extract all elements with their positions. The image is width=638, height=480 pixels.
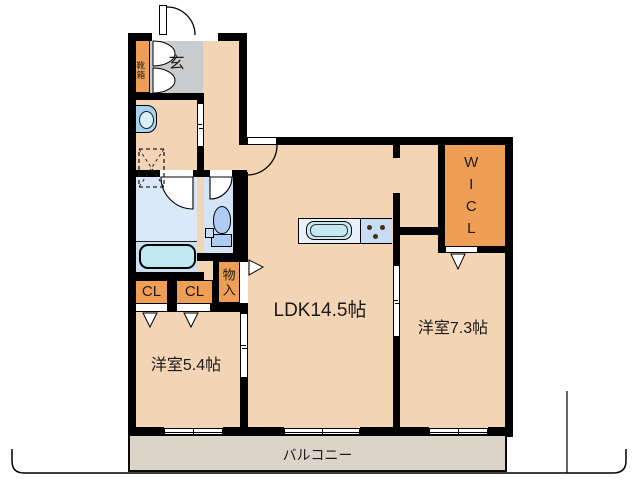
bedroom-east-label: 洋室7.3帖 — [400, 321, 506, 338]
ldk-label: LDK14.5帖 — [247, 301, 393, 321]
kitchen-sink-inner — [310, 224, 348, 237]
toilet-bowl-icon — [213, 206, 231, 234]
wall-storage-left — [213, 261, 218, 307]
entrance-label: 玄 — [150, 56, 203, 73]
floor-plan: 玄 靴箱 LDK14.5帖 洋室7.3帖 洋室5.4帖 バルコニー WICL 物… — [0, 0, 638, 480]
wall-ldk-west-c — [240, 378, 248, 435]
storage-label: 物入 — [221, 264, 238, 302]
bedroom-east-sliding-door — [393, 265, 400, 337]
wall-washroom-bath-a — [128, 170, 160, 177]
wall-bottom-b — [223, 427, 284, 436]
bathroom-floor — [135, 177, 197, 241]
window-bedroom-east — [429, 428, 488, 435]
ldk-door-leaf — [247, 137, 277, 145]
storage-door-opening — [240, 262, 248, 303]
toilet-paper-holder-icon — [205, 228, 214, 238]
kitchen-stove-section — [360, 219, 392, 243]
toilet-door-opening — [210, 170, 232, 177]
bathtub-icon — [139, 244, 196, 269]
wall-wicl-left — [438, 145, 445, 253]
washbasin-icon — [135, 105, 157, 133]
wall-washroom-bath-b — [193, 170, 204, 177]
stove-burner-icon — [373, 234, 378, 239]
wall-top-a — [128, 33, 152, 41]
window-ldk — [284, 428, 360, 435]
wall-ldk-west-a — [240, 172, 248, 262]
window-bedroom-west — [164, 428, 223, 435]
wicl-label: WICL — [463, 150, 487, 245]
nook-opening-floor — [393, 156, 400, 196]
wall-washroom-right-a — [197, 93, 204, 103]
wall-hall-right — [239, 33, 247, 140]
wall-right — [505, 137, 513, 437]
balcony-label: バルコニー — [128, 448, 507, 463]
wall-storage-bottom — [218, 303, 240, 312]
toilet-tank-icon — [211, 234, 232, 247]
washroom-sliding-door — [197, 103, 204, 147]
wicl-door-bar — [445, 246, 478, 253]
wall-cl-bottom-mid — [168, 303, 176, 312]
bedroom-west-sliding-door — [240, 313, 248, 378]
wall-ldk-east-c — [393, 337, 400, 435]
kitchen-sink-icon — [306, 221, 352, 240]
bedroom-west-label: 洋室5.4帖 — [132, 358, 240, 375]
stove-burner-icon — [367, 225, 372, 230]
front-door-leaf — [159, 5, 167, 35]
kitchen-counter — [298, 218, 392, 244]
stove-burner-icon — [380, 225, 385, 230]
wall-cl-bottom-right — [211, 303, 218, 312]
closet-b-label: CL — [176, 284, 213, 300]
wall-wicl-bottom-b — [478, 246, 513, 253]
washbasin-bowl-icon — [139, 111, 154, 129]
front-door-swing-arc — [167, 7, 195, 35]
shoe-box-label: 靴箱 — [136, 50, 149, 90]
ldk-floor — [247, 145, 393, 428]
wall-bath-bottom — [128, 272, 204, 280]
bathroom-door-opening — [160, 170, 193, 177]
wall-entrance-bottom — [128, 93, 203, 100]
closet-b-door-bar — [176, 303, 211, 312]
wall-wicl-bottom-a — [438, 246, 445, 253]
wall-bottom-d — [488, 427, 513, 436]
closet-a-door-bar — [135, 303, 168, 312]
wall-toilet-bottom — [197, 253, 240, 261]
wall-ldk-top — [239, 137, 513, 145]
wall-bottom-a — [128, 427, 164, 436]
wall-ldk-east-a — [393, 145, 400, 158]
closet-a-label: CL — [135, 284, 168, 300]
